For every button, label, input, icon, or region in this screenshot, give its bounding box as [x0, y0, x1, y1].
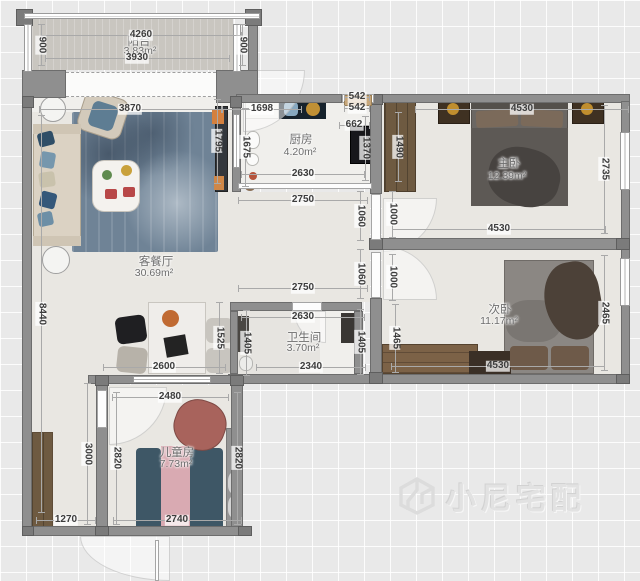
kitchen-sliding-door	[238, 183, 372, 189]
master-top-wall	[374, 94, 630, 103]
table-plate	[123, 187, 135, 197]
dimension-label: 4530	[486, 361, 510, 372]
dimension-label: 2340	[299, 362, 323, 373]
kids-bed-rail-right	[190, 448, 223, 530]
wall-joint	[22, 526, 34, 536]
dimension-label: 900	[237, 36, 248, 55]
dimension-label: 1795	[212, 129, 223, 153]
dimension-label: 3000	[82, 442, 93, 466]
dimension-label: 2820	[232, 446, 243, 470]
master-window	[620, 132, 630, 190]
cube-logo-icon	[396, 476, 438, 516]
dimension-label: 1465	[390, 326, 401, 350]
dimension-label: 1405	[355, 330, 366, 354]
room-area-kitchen: 4.20m²	[284, 146, 317, 158]
dimension-label: 4260	[129, 30, 153, 41]
balcony-top-window	[24, 13, 260, 19]
floor-plan-canvas: 小尼宅配	[0, 0, 640, 581]
dimension-label: 4530	[510, 104, 534, 115]
dimension-label: 2600	[152, 362, 176, 373]
bathroom-left-wall	[230, 311, 238, 374]
dimension-label: 900	[36, 36, 47, 55]
dimension-label: 1000	[387, 202, 398, 226]
bathroom-door	[292, 302, 322, 311]
dimension-label: 1060	[355, 262, 366, 286]
dining-plate	[162, 310, 179, 327]
wall-joint	[230, 375, 244, 386]
room-area-bathroom: 3.70m²	[287, 342, 320, 354]
table-plate	[102, 170, 112, 180]
dimension-label: 2735	[599, 157, 610, 181]
table-plate	[121, 165, 132, 176]
room-area-second-bedroom: 11.17m²	[480, 315, 518, 327]
wall-joint	[616, 374, 630, 384]
second-bedroom-door	[371, 252, 381, 298]
hall-right-wall-upper	[370, 94, 382, 194]
dimension-label: 2630	[291, 169, 315, 180]
kitchen-stove	[306, 102, 320, 116]
table-plate	[105, 189, 117, 199]
dimension-label: 1060	[355, 204, 366, 228]
room-label-master-bedroom: 主卧	[498, 155, 521, 171]
dimension-label: 1370	[360, 136, 371, 160]
left-outer-wall	[22, 96, 32, 536]
wall-joint	[22, 96, 34, 108]
dimension-label: 2465	[599, 301, 610, 325]
dining-tray	[163, 334, 188, 358]
balcony-sliding-opening	[66, 72, 216, 97]
wall-joint	[369, 372, 383, 384]
dimension-label: 2750	[291, 283, 315, 294]
room-area-master-bedroom: 12.39m²	[488, 170, 527, 182]
wall-joint	[95, 375, 109, 386]
dimension-label: 2820	[111, 446, 122, 470]
wall-joint	[95, 526, 109, 536]
kitchen-top-wall	[236, 94, 342, 103]
dimension-label: 2480	[158, 392, 182, 403]
dimension-label: 3870	[118, 104, 142, 115]
dimension-label: 1405	[241, 331, 252, 355]
wall-joint	[238, 526, 252, 536]
dining-chair	[114, 314, 147, 345]
master-door	[371, 194, 381, 240]
dining-chair	[116, 346, 149, 375]
watermark-text: 小尼宅配	[446, 474, 586, 518]
bottom-outer-wall	[22, 526, 252, 536]
kids-room-door	[97, 390, 107, 428]
dimension-label: 2740	[165, 515, 189, 526]
hall-right-wall-lower	[370, 298, 382, 382]
wall-joint	[230, 96, 242, 108]
room-area-living-dining: 30.69m²	[135, 267, 174, 279]
wall-joint	[616, 238, 630, 250]
dimension-label: 1698	[250, 104, 274, 115]
wall	[22, 70, 66, 98]
dimension-label: 4530	[487, 224, 511, 235]
dimension-label: 1000	[387, 265, 398, 289]
south-wall	[228, 374, 630, 384]
room-label-kitchen: 厨房	[290, 131, 313, 147]
balcony-left-window	[24, 24, 32, 72]
dimension-label: 542	[348, 92, 367, 103]
kids-bed-rail-left	[136, 448, 161, 530]
second-bedroom-window	[620, 258, 630, 306]
dimension-label: 1490	[393, 135, 404, 159]
dimension-label: 1675	[240, 135, 251, 159]
dimension-label: 662	[345, 120, 364, 131]
floor-lamp	[42, 246, 70, 274]
room-area-kids-room: 7.73m²	[160, 458, 193, 470]
living-bottom-window	[133, 376, 211, 383]
bedroom-divider-wall	[370, 238, 630, 250]
dimension-label: 2750	[291, 195, 315, 206]
dimension-label: 1525	[214, 326, 225, 350]
dimension-label: 3930	[125, 53, 149, 64]
dimension-label: 8440	[36, 302, 47, 326]
hallway-cabinet	[31, 432, 53, 530]
dimension-label: 2630	[291, 312, 315, 323]
dimension-label: 1270	[54, 515, 78, 526]
entry-door-frame	[155, 540, 159, 581]
dimension-label: 542	[348, 103, 367, 114]
coffee-table	[92, 160, 140, 212]
balcony-right-wall	[248, 18, 258, 72]
watermark: 小尼宅配	[396, 474, 586, 518]
